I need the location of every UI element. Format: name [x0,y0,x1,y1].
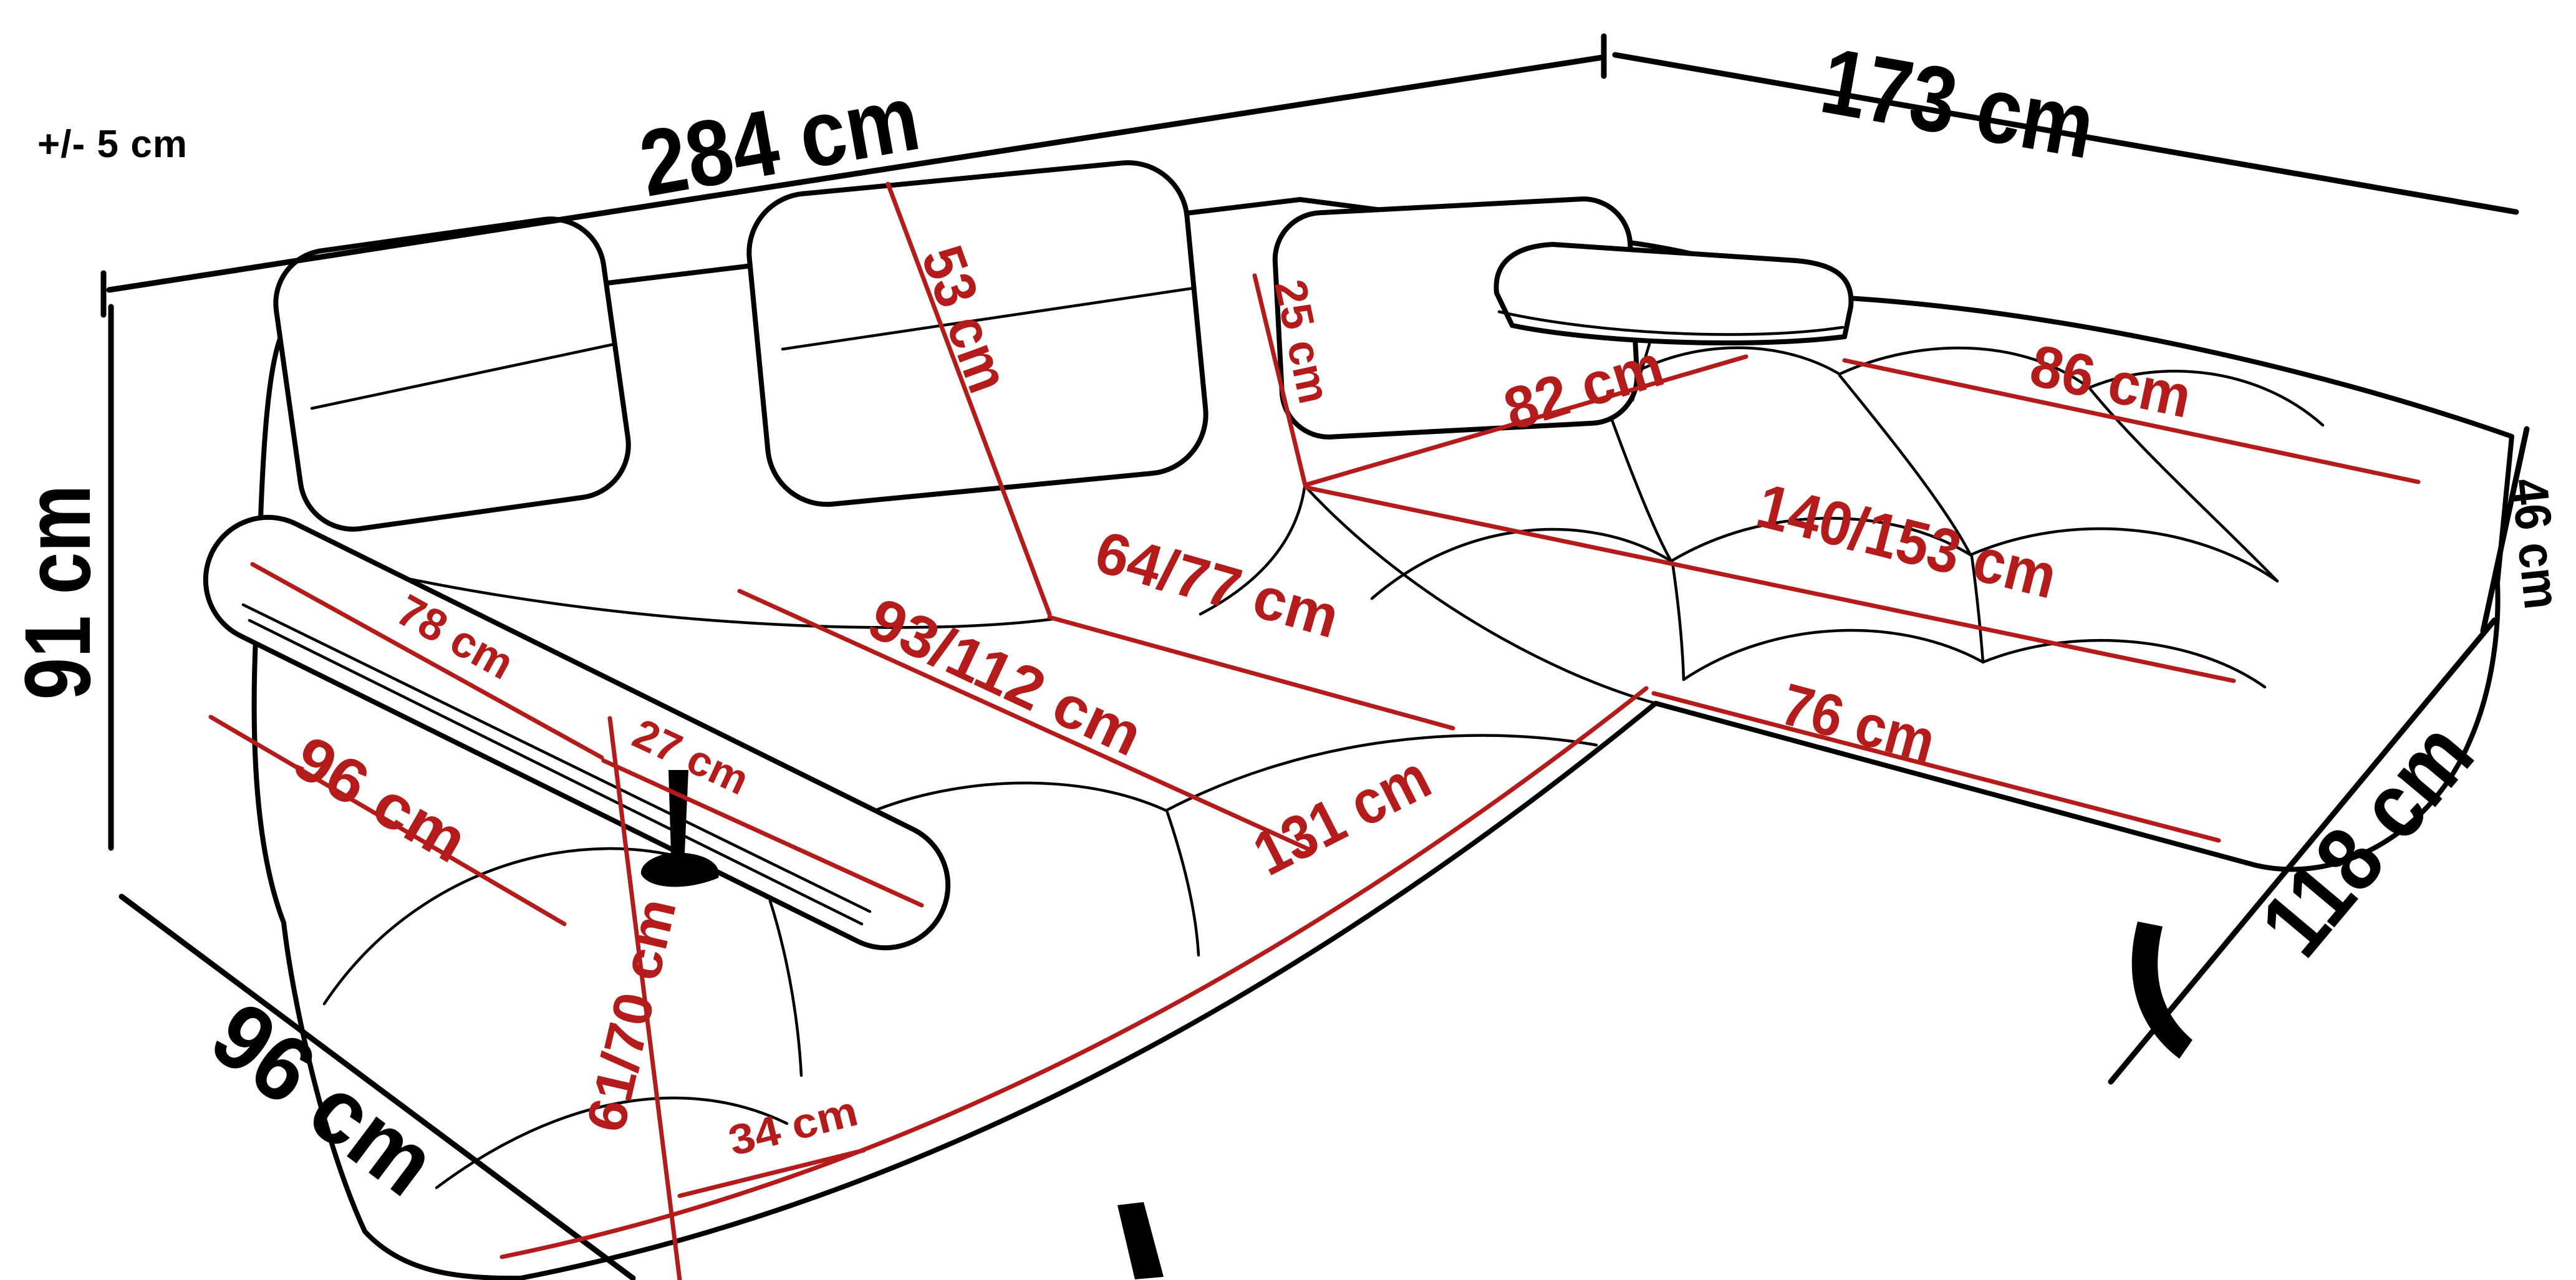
dim-label-chaise-width: 173 cm [1814,27,2102,178]
sofa-drawing [206,157,2512,1279]
back-cushion-left [269,212,635,536]
dim-label-seat-height: 46 cm [2501,476,2570,612]
sofa-dimension-diagram: +/- 5 cm 284 cm 173 cm 91 cm 96 cm 46 cm… [0,0,2576,1280]
front-center-leg [1117,1202,1164,1279]
tolerance-label: +/- 5 cm [37,123,187,166]
dim-label-back-height: 91 cm [5,485,110,700]
diagram-canvas: +/- 5 cm 284 cm 173 cm 91 cm 96 cm 46 cm… [0,0,2576,1280]
